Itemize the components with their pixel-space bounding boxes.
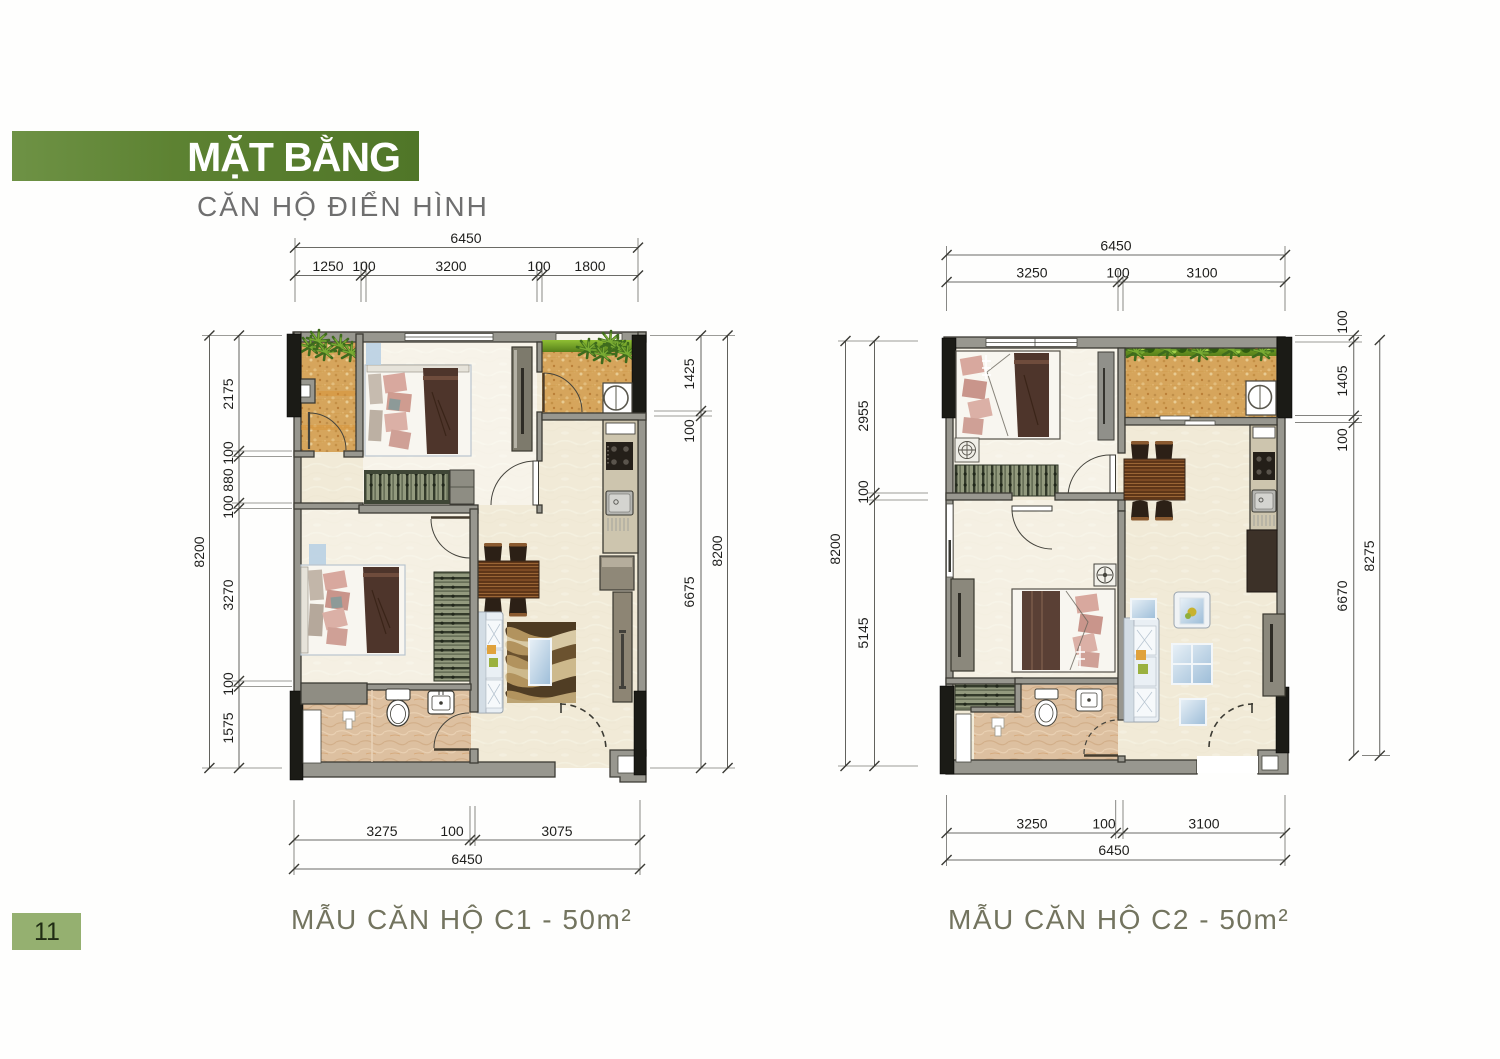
svg-text:100: 100 [1334, 428, 1350, 452]
svg-text:3100: 3100 [1186, 265, 1217, 281]
svg-text:3275: 3275 [366, 823, 397, 839]
svg-text:1250: 1250 [312, 258, 343, 274]
svg-text:8200: 8200 [191, 536, 207, 567]
svg-text:100: 100 [855, 480, 871, 504]
svg-text:8275: 8275 [1361, 540, 1377, 571]
svg-text:1800: 1800 [574, 258, 605, 274]
svg-text:5145: 5145 [855, 617, 871, 648]
svg-text:2175: 2175 [220, 378, 236, 409]
svg-text:100: 100 [440, 823, 464, 839]
svg-text:6450: 6450 [1098, 842, 1129, 858]
svg-text:100: 100 [352, 258, 376, 274]
svg-text:6450: 6450 [1100, 238, 1131, 254]
svg-text:100: 100 [1106, 265, 1130, 281]
svg-text:100: 100 [220, 441, 236, 465]
svg-text:100: 100 [220, 672, 236, 696]
svg-text:8200: 8200 [827, 533, 843, 564]
svg-text:6450: 6450 [450, 230, 481, 246]
svg-text:2955: 2955 [855, 400, 871, 431]
svg-text:100: 100 [527, 258, 551, 274]
svg-text:880: 880 [220, 468, 236, 492]
svg-text:100: 100 [1334, 310, 1350, 334]
svg-text:1405: 1405 [1334, 365, 1350, 396]
svg-text:100: 100 [1092, 816, 1116, 832]
svg-text:1425: 1425 [681, 358, 697, 389]
svg-text:3250: 3250 [1016, 816, 1047, 832]
svg-text:3100: 3100 [1188, 816, 1219, 832]
svg-text:6670: 6670 [1334, 580, 1350, 611]
svg-text:3270: 3270 [220, 579, 236, 610]
svg-text:3250: 3250 [1016, 265, 1047, 281]
svg-text:3200: 3200 [435, 258, 466, 274]
svg-text:100: 100 [220, 495, 236, 519]
svg-text:6675: 6675 [681, 576, 697, 607]
svg-text:100: 100 [681, 419, 697, 443]
svg-text:3075: 3075 [541, 823, 572, 839]
svg-text:6450: 6450 [451, 851, 482, 867]
svg-text:1575: 1575 [220, 712, 236, 743]
svg-text:8200: 8200 [709, 535, 725, 566]
